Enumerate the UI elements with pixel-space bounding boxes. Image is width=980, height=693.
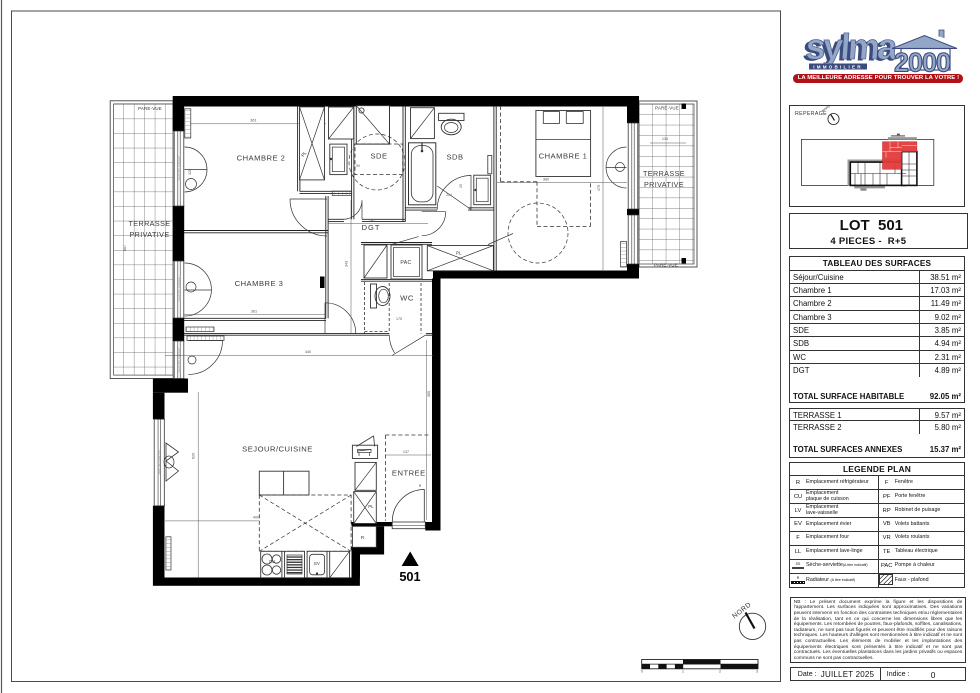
svg-text:137: 137 bbox=[403, 450, 409, 454]
svg-text:0: 0 bbox=[641, 670, 643, 674]
svg-text:242: 242 bbox=[369, 219, 375, 223]
svg-text:CU: CU bbox=[269, 559, 275, 564]
svg-text:365: 365 bbox=[427, 391, 431, 397]
svg-text:CHAMBRE 2: CHAMBRE 2 bbox=[237, 154, 286, 163]
svg-text:SAUT DE LOUP PVC: SAUT DE LOUP PVC bbox=[178, 276, 182, 301]
svg-text:TERRASSE: TERRASSE bbox=[643, 169, 685, 178]
svg-text:ENTREE: ENTREE bbox=[392, 469, 426, 478]
svg-text:SDB: SDB bbox=[446, 153, 463, 162]
svg-text:867: 867 bbox=[123, 245, 127, 251]
svg-text:PL: PL bbox=[368, 504, 374, 509]
svg-text:PARE-VUE: PARE-VUE bbox=[655, 106, 679, 111]
svg-text:R: R bbox=[419, 484, 422, 488]
svg-text:PRIVATIVE: PRIVATIVE bbox=[129, 230, 169, 239]
svg-text:WC: WC bbox=[400, 294, 414, 303]
svg-text:361: 361 bbox=[251, 310, 257, 314]
svg-text:343: 343 bbox=[345, 261, 349, 267]
svg-text:2000: 2000 bbox=[894, 48, 950, 78]
svg-text:PL: PL bbox=[456, 251, 462, 256]
svg-text:2: 2 bbox=[719, 670, 721, 674]
svg-text:134: 134 bbox=[662, 137, 668, 141]
svg-text:214: 214 bbox=[446, 193, 452, 197]
svg-text:SEJOUR/CUISINE: SEJOUR/CUISINE bbox=[242, 445, 313, 454]
svg-text:479: 479 bbox=[597, 185, 601, 191]
svg-text:440: 440 bbox=[305, 350, 311, 354]
svg-text:PARE-VUE: PARE-VUE bbox=[654, 263, 678, 268]
svg-text:PRIVATIVE: PRIVATIVE bbox=[644, 180, 684, 189]
svg-text:SDE: SDE bbox=[370, 152, 387, 161]
svg-text:400: 400 bbox=[253, 516, 259, 520]
svg-text:25: 25 bbox=[459, 184, 463, 188]
svg-text:90: 90 bbox=[356, 164, 360, 168]
svg-text:CHAMBRE 1: CHAMBRE 1 bbox=[539, 152, 588, 161]
svg-text:361: 361 bbox=[250, 119, 256, 123]
svg-text:SAUT DE LOUP PVC: SAUT DE LOUP PVC bbox=[157, 449, 161, 474]
svg-text:SAUT DE LOUP PVC: SAUT DE LOUP PVC bbox=[178, 347, 182, 372]
svg-text:EV: EV bbox=[314, 561, 320, 566]
svg-text:320: 320 bbox=[188, 169, 192, 175]
svg-text:620: 620 bbox=[192, 453, 196, 459]
svg-text:IMMOBILIER: IMMOBILIER bbox=[813, 65, 863, 70]
svg-text:TERRASSE: TERRASSE bbox=[129, 219, 171, 228]
svg-text:sylma: sylma bbox=[804, 26, 899, 67]
svg-text:175: 175 bbox=[396, 317, 402, 321]
svg-text:SAUT DE LOUP PVC: SAUT DE LOUP PVC bbox=[178, 155, 182, 180]
svg-text:PAC: PAC bbox=[400, 260, 411, 266]
svg-text:501: 501 bbox=[399, 569, 420, 584]
svg-text:PARE-VUE: PARE-VUE bbox=[138, 106, 162, 111]
svg-text:3: 3 bbox=[756, 670, 758, 674]
svg-text:DGT: DGT bbox=[362, 223, 381, 232]
svg-text:1: 1 bbox=[682, 670, 684, 674]
svg-text:360: 360 bbox=[543, 178, 549, 182]
svg-text:CHAMBRE 3: CHAMBRE 3 bbox=[235, 279, 284, 288]
